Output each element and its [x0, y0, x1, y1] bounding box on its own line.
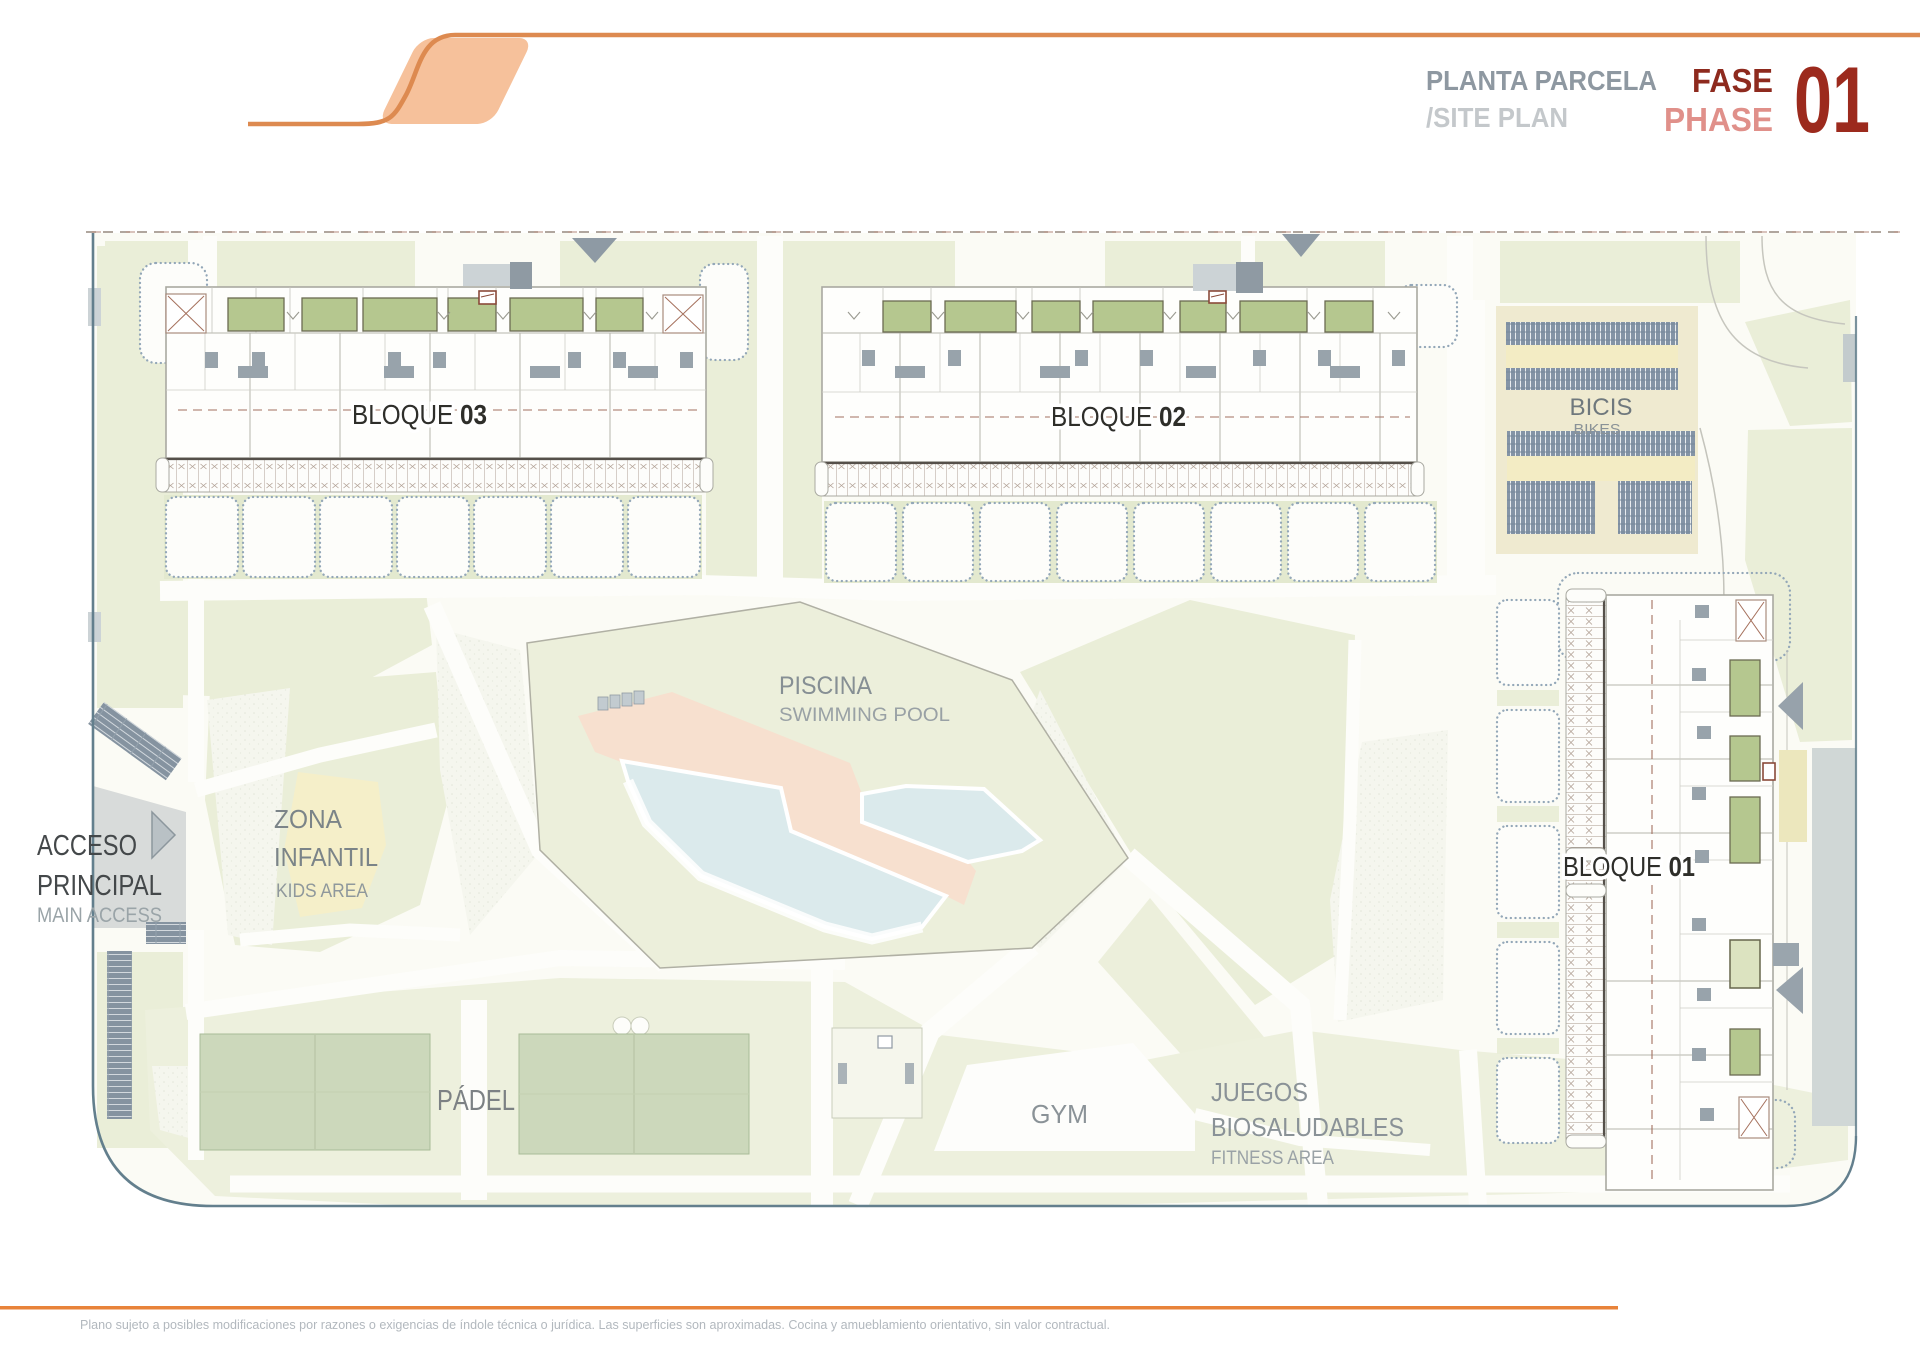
svg-text:ACCESO: ACCESO — [37, 830, 137, 862]
svg-text:FITNESS AREA: FITNESS AREA — [1211, 1148, 1334, 1169]
svg-text:PLANTA PARCELA: PLANTA PARCELA — [1426, 65, 1657, 96]
svg-text:01: 01 — [1794, 47, 1870, 152]
svg-text:PHASE: PHASE — [1664, 101, 1773, 138]
svg-text:PRINCIPAL: PRINCIPAL — [37, 870, 162, 902]
svg-text:BLOQUE 03: BLOQUE 03 — [352, 399, 487, 430]
svg-text:/SITE PLAN: /SITE PLAN — [1426, 102, 1568, 133]
svg-text:BICIS: BICIS — [1570, 394, 1633, 421]
svg-text:PISCINA: PISCINA — [779, 672, 872, 700]
svg-text:ZONA: ZONA — [274, 804, 343, 834]
svg-text:BLOQUE 01: BLOQUE 01 — [1563, 851, 1695, 882]
svg-text:BIOSALUDABLES: BIOSALUDABLES — [1211, 1112, 1404, 1142]
svg-text:FASE: FASE — [1692, 62, 1773, 99]
svg-text:INFANTIL: INFANTIL — [274, 842, 378, 872]
svg-text:MAIN ACCESS: MAIN ACCESS — [37, 904, 162, 927]
svg-text:SWIMMING POOL: SWIMMING POOL — [779, 705, 950, 726]
svg-text:KIDS AREA: KIDS AREA — [276, 881, 368, 902]
svg-text:GYM: GYM — [1031, 1099, 1088, 1129]
svg-text:BIKES: BIKES — [1574, 421, 1621, 438]
svg-text:JUEGOS: JUEGOS — [1211, 1077, 1308, 1107]
svg-text:BLOQUE 02: BLOQUE 02 — [1051, 401, 1186, 432]
svg-text:Plano sujeto a posibles modifi: Plano sujeto a posibles modificaciones p… — [80, 1318, 1110, 1332]
svg-text:PÁDEL: PÁDEL — [437, 1084, 515, 1117]
